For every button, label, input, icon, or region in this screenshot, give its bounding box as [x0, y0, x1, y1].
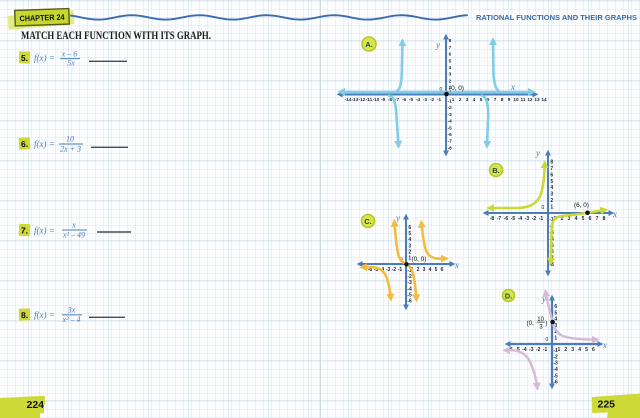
svg-text:8: 8 — [603, 216, 606, 222]
svg-text:-8: -8 — [490, 216, 495, 222]
svg-text:8: 8 — [550, 160, 553, 166]
svg-text:2: 2 — [550, 198, 553, 204]
svg-text:4: 4 — [408, 237, 411, 243]
svg-text:-4: -4 — [518, 216, 523, 222]
svg-text:-5: -5 — [553, 373, 558, 379]
svg-text:13: 13 — [534, 97, 540, 102]
svg-text:3: 3 — [466, 97, 469, 102]
svg-text:x² – 49: x² – 49 — [62, 231, 85, 240]
svg-text:5: 5 — [585, 347, 588, 353]
svg-text:-2: -2 — [448, 105, 453, 110]
svg-text:2: 2 — [564, 347, 567, 353]
svg-text:2: 2 — [449, 78, 452, 83]
svg-text:4: 4 — [449, 65, 452, 70]
svg-text:(0, 0): (0, 0) — [412, 256, 427, 263]
svg-text:2x + 3: 2x + 3 — [60, 145, 81, 154]
svg-text:9: 9 — [508, 97, 511, 102]
svg-text:RATIONAL FUNCTIONS AND THEIR G: RATIONAL FUNCTIONS AND THEIR GRAPHS — [476, 15, 637, 22]
svg-text:-6: -6 — [402, 97, 407, 102]
svg-text:4: 4 — [473, 97, 476, 102]
svg-text:-1: -1 — [539, 216, 544, 222]
svg-text:-3: -3 — [407, 280, 412, 286]
svg-text:-4: -4 — [416, 97, 421, 102]
svg-text:0: 0 — [546, 337, 549, 343]
svg-text:x: x — [454, 260, 459, 270]
svg-text:5: 5 — [480, 97, 483, 102]
svg-text:3: 3 — [423, 267, 426, 273]
svg-text:A.: A. — [365, 40, 373, 49]
svg-text:-3: -3 — [423, 97, 428, 102]
svg-text:): ) — [545, 320, 547, 327]
svg-text:5: 5 — [435, 267, 438, 273]
svg-text:f(x) =: f(x) = — [34, 226, 55, 236]
svg-text:3x: 3x — [67, 306, 76, 315]
svg-text:(0, 0): (0, 0) — [449, 85, 464, 92]
svg-text:-2: -2 — [407, 274, 412, 280]
svg-text:-3: -3 — [525, 216, 530, 222]
svg-text:11: 11 — [521, 97, 526, 102]
svg-text:8.: 8. — [21, 310, 28, 320]
svg-text:-7: -7 — [448, 139, 453, 144]
svg-text:5: 5 — [449, 58, 452, 63]
svg-text:-5: -5 — [511, 216, 516, 222]
svg-text:(0,: (0, — [527, 320, 535, 327]
svg-text:6: 6 — [550, 172, 553, 178]
svg-text:x: x — [612, 209, 617, 219]
svg-text:D.: D. — [505, 292, 513, 301]
svg-text:6: 6 — [554, 304, 557, 310]
svg-text:x² – 4: x² – 4 — [62, 315, 81, 324]
svg-text:y: y — [435, 40, 440, 50]
svg-text:2: 2 — [417, 267, 420, 273]
svg-text:MATCH EACH FUNCTION WITH ITS G: MATCH EACH FUNCTION WITH ITS GRAPH. — [21, 30, 211, 42]
svg-text:-1: -1 — [448, 99, 453, 104]
svg-text:6: 6 — [589, 216, 592, 222]
svg-text:-7: -7 — [497, 216, 502, 222]
svg-text:-1: -1 — [437, 97, 442, 102]
svg-text:-8: -8 — [448, 145, 453, 150]
svg-text:-4: -4 — [553, 367, 558, 373]
svg-text:5: 5 — [550, 179, 553, 185]
svg-text:x: x — [602, 340, 607, 350]
svg-text:x: x — [71, 221, 76, 230]
svg-text:-12: -12 — [359, 97, 366, 102]
svg-text:B.: B. — [492, 166, 500, 175]
svg-text:10: 10 — [66, 135, 74, 144]
svg-text:-2: -2 — [430, 97, 435, 102]
svg-text:CHAPTER 24: CHAPTER 24 — [19, 13, 65, 24]
svg-text:-4: -4 — [407, 286, 412, 292]
svg-text:f(x) =: f(x) = — [34, 139, 55, 149]
svg-text:-1: -1 — [553, 348, 558, 354]
svg-text:x – 6: x – 6 — [61, 50, 78, 59]
svg-text:7: 7 — [449, 45, 452, 50]
svg-text:3: 3 — [550, 192, 553, 198]
svg-text:y: y — [535, 148, 540, 158]
svg-text:7.: 7. — [21, 225, 29, 235]
svg-text:-6: -6 — [448, 132, 453, 137]
svg-text:5: 5 — [554, 310, 557, 316]
svg-text:3: 3 — [568, 216, 571, 222]
svg-text:1: 1 — [452, 97, 455, 102]
svg-text:-9: -9 — [381, 97, 386, 102]
svg-text:-10: -10 — [373, 97, 380, 102]
svg-text:14: 14 — [541, 97, 547, 102]
svg-text:-1: -1 — [543, 347, 548, 353]
svg-text:4: 4 — [575, 216, 578, 222]
svg-text:-3: -3 — [553, 361, 558, 367]
svg-text:5.: 5. — [21, 53, 29, 63]
svg-text:3: 3 — [539, 325, 543, 331]
svg-text:6: 6 — [449, 52, 452, 57]
svg-text:1: 1 — [558, 347, 561, 353]
svg-text:5: 5 — [582, 216, 585, 222]
svg-text:7: 7 — [550, 166, 553, 172]
svg-text:0: 0 — [542, 205, 545, 211]
svg-text:3: 3 — [408, 243, 411, 249]
svg-text:4: 4 — [578, 347, 581, 353]
svg-text:(6, 0): (6, 0) — [574, 202, 589, 209]
svg-text:-4: -4 — [522, 347, 527, 353]
svg-text:C.: C. — [364, 217, 372, 226]
svg-text:f(x) =: f(x) = — [34, 53, 55, 63]
svg-text:-3: -3 — [448, 112, 453, 117]
svg-text:224: 224 — [27, 399, 45, 411]
svg-text:2: 2 — [459, 97, 462, 102]
svg-text:x: x — [510, 82, 515, 92]
svg-text:6.: 6. — [21, 139, 29, 149]
svg-text:-2: -2 — [532, 216, 537, 222]
svg-text:f(x) =: f(x) = — [34, 310, 55, 320]
svg-text:-1: -1 — [398, 267, 403, 273]
svg-text:-6: -6 — [504, 216, 509, 222]
svg-text:-5: -5 — [409, 97, 414, 102]
svg-text:-2: -2 — [553, 354, 558, 360]
svg-text:-5: -5 — [448, 125, 453, 130]
svg-text:-5: -5 — [407, 293, 412, 299]
svg-text:1: 1 — [550, 204, 553, 210]
svg-text:4: 4 — [429, 267, 432, 273]
svg-text:225: 225 — [598, 399, 616, 411]
svg-text:6: 6 — [441, 267, 444, 273]
svg-text:-3: -3 — [386, 267, 391, 273]
svg-text:12: 12 — [527, 97, 533, 102]
svg-text:3: 3 — [449, 72, 452, 77]
svg-text:-4: -4 — [448, 119, 453, 124]
svg-text:-2: -2 — [536, 347, 541, 353]
svg-text:5: 5 — [408, 231, 411, 237]
svg-text:7: 7 — [596, 216, 599, 222]
svg-text:6: 6 — [592, 347, 595, 353]
svg-text:y: y — [395, 213, 400, 223]
svg-text:2: 2 — [408, 250, 411, 256]
svg-text:-3: -3 — [529, 347, 534, 353]
svg-text:-6: -6 — [553, 380, 558, 386]
svg-text:-6: -6 — [407, 299, 412, 305]
svg-text:4: 4 — [550, 185, 553, 191]
svg-text:1: 1 — [554, 336, 557, 342]
svg-text:6: 6 — [408, 225, 411, 231]
svg-text:8: 8 — [501, 97, 504, 102]
svg-text:8: 8 — [449, 38, 452, 43]
svg-text:-11: -11 — [366, 97, 373, 102]
svg-text:5x: 5x — [67, 59, 75, 68]
svg-text:3: 3 — [571, 347, 574, 353]
svg-text:-2: -2 — [392, 267, 397, 273]
svg-text:10: 10 — [513, 97, 519, 102]
svg-text:7: 7 — [494, 97, 497, 102]
